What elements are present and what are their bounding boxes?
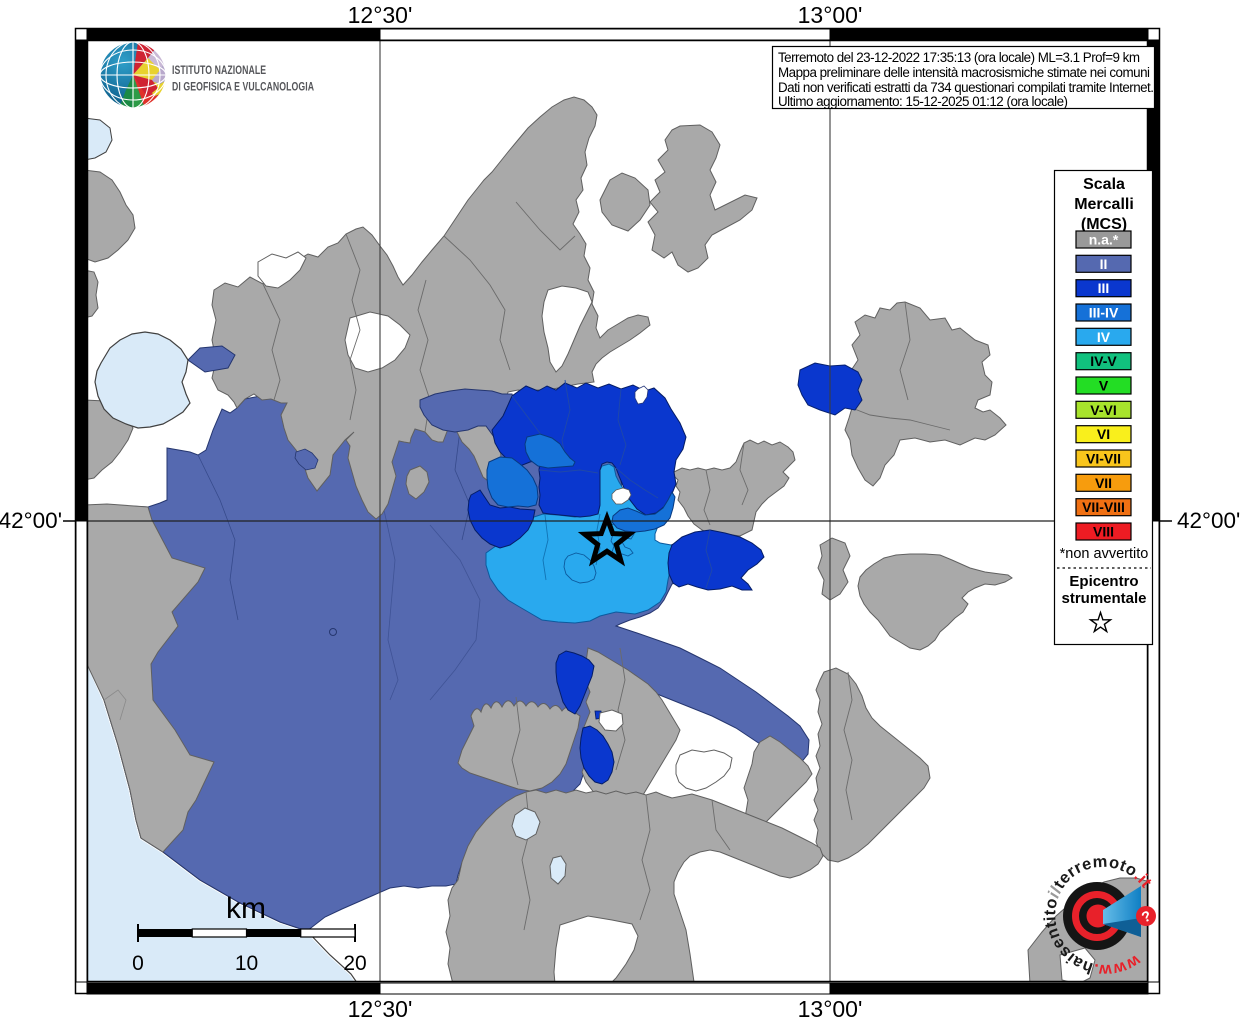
svg-text:Mercalli: Mercalli — [1074, 196, 1134, 213]
svg-text:12°30': 12°30' — [348, 996, 413, 1022]
svg-text:*non avvertito: *non avvertito — [1060, 546, 1149, 562]
svg-text:Scala: Scala — [1083, 176, 1125, 193]
svg-text:II: II — [1100, 256, 1108, 272]
svg-text:13°00': 13°00' — [798, 996, 863, 1022]
svg-text:ISTITUTO NAZIONALE: ISTITUTO NAZIONALE — [172, 65, 266, 78]
svg-text:IV: IV — [1097, 329, 1111, 345]
svg-text:VII: VII — [1095, 475, 1112, 491]
svg-text:12°30': 12°30' — [348, 2, 413, 28]
svg-text:Dati non verificati estratti d: Dati non verificati estratti da 734 ques… — [778, 80, 1154, 95]
svg-text:V-VI: V-VI — [1090, 402, 1116, 418]
svg-text:VI-VII: VI-VII — [1086, 451, 1121, 467]
svg-text:V: V — [1099, 378, 1109, 394]
svg-text:III-IV: III-IV — [1089, 305, 1119, 321]
svg-text:strumentale: strumentale — [1061, 590, 1146, 607]
svg-text:0: 0 — [132, 952, 144, 975]
svg-text:IV-V: IV-V — [1090, 353, 1117, 369]
svg-text:10: 10 — [235, 952, 258, 975]
svg-text:DI GEOFISICA E VULCANOLOGIA: DI GEOFISICA E VULCANOLOGIA — [172, 81, 314, 94]
svg-text:km: km — [226, 892, 266, 925]
svg-text:VIII: VIII — [1093, 524, 1114, 540]
svg-text:VII-VIII: VII-VIII — [1082, 499, 1125, 515]
svg-text:Ultimo aggiornamento: 15-12-20: Ultimo aggiornamento: 15-12-2025 01:12 (… — [778, 94, 1068, 109]
svg-text:III: III — [1098, 280, 1110, 296]
svg-text:Epicentro: Epicentro — [1069, 573, 1138, 590]
svg-text:20: 20 — [343, 952, 366, 975]
svg-text:42°00': 42°00' — [1177, 508, 1240, 533]
svg-text:n.a.*: n.a.* — [1089, 232, 1119, 248]
svg-text:Mappa preliminare delle intens: Mappa preliminare delle intensità macros… — [778, 65, 1150, 80]
svg-text:13°00': 13°00' — [798, 2, 863, 28]
svg-text:VI: VI — [1097, 426, 1110, 442]
svg-text:Terremoto del 23-12-2022 17:35: Terremoto del 23-12-2022 17:35:13 (ora l… — [778, 50, 1140, 65]
svg-text:42°00': 42°00' — [0, 508, 62, 533]
